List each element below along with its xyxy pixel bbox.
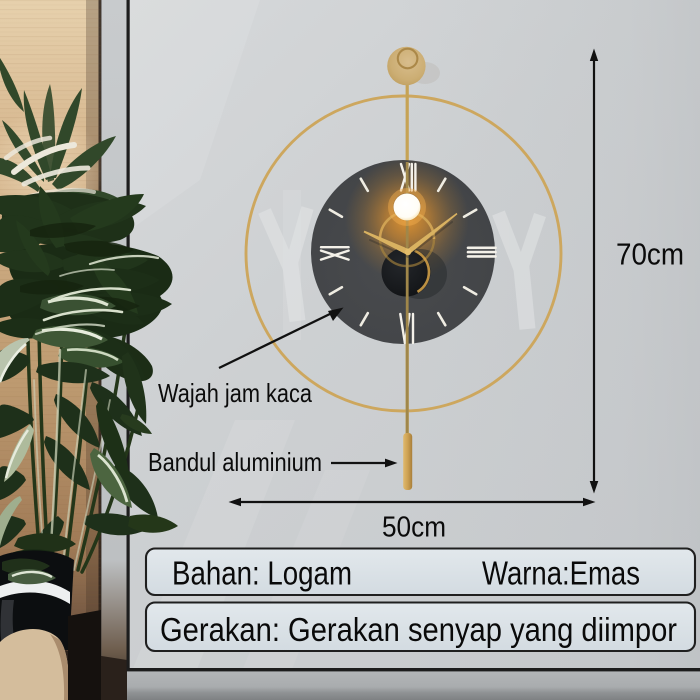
svg-text:Warna:Emas: Warna:Emas — [482, 555, 640, 592]
svg-text:Bandul aluminium: Bandul aluminium — [148, 447, 322, 477]
svg-text:70cm: 70cm — [616, 237, 684, 272]
svg-text:Gerakan: Gerakan senyap yang d: Gerakan: Gerakan senyap yang diimpor — [160, 611, 677, 648]
svg-text:Bahan: Logam: Bahan: Logam — [172, 555, 352, 592]
svg-text:50cm: 50cm — [382, 512, 446, 544]
svg-text:Wajah jam kaca: Wajah jam kaca — [158, 378, 312, 408]
